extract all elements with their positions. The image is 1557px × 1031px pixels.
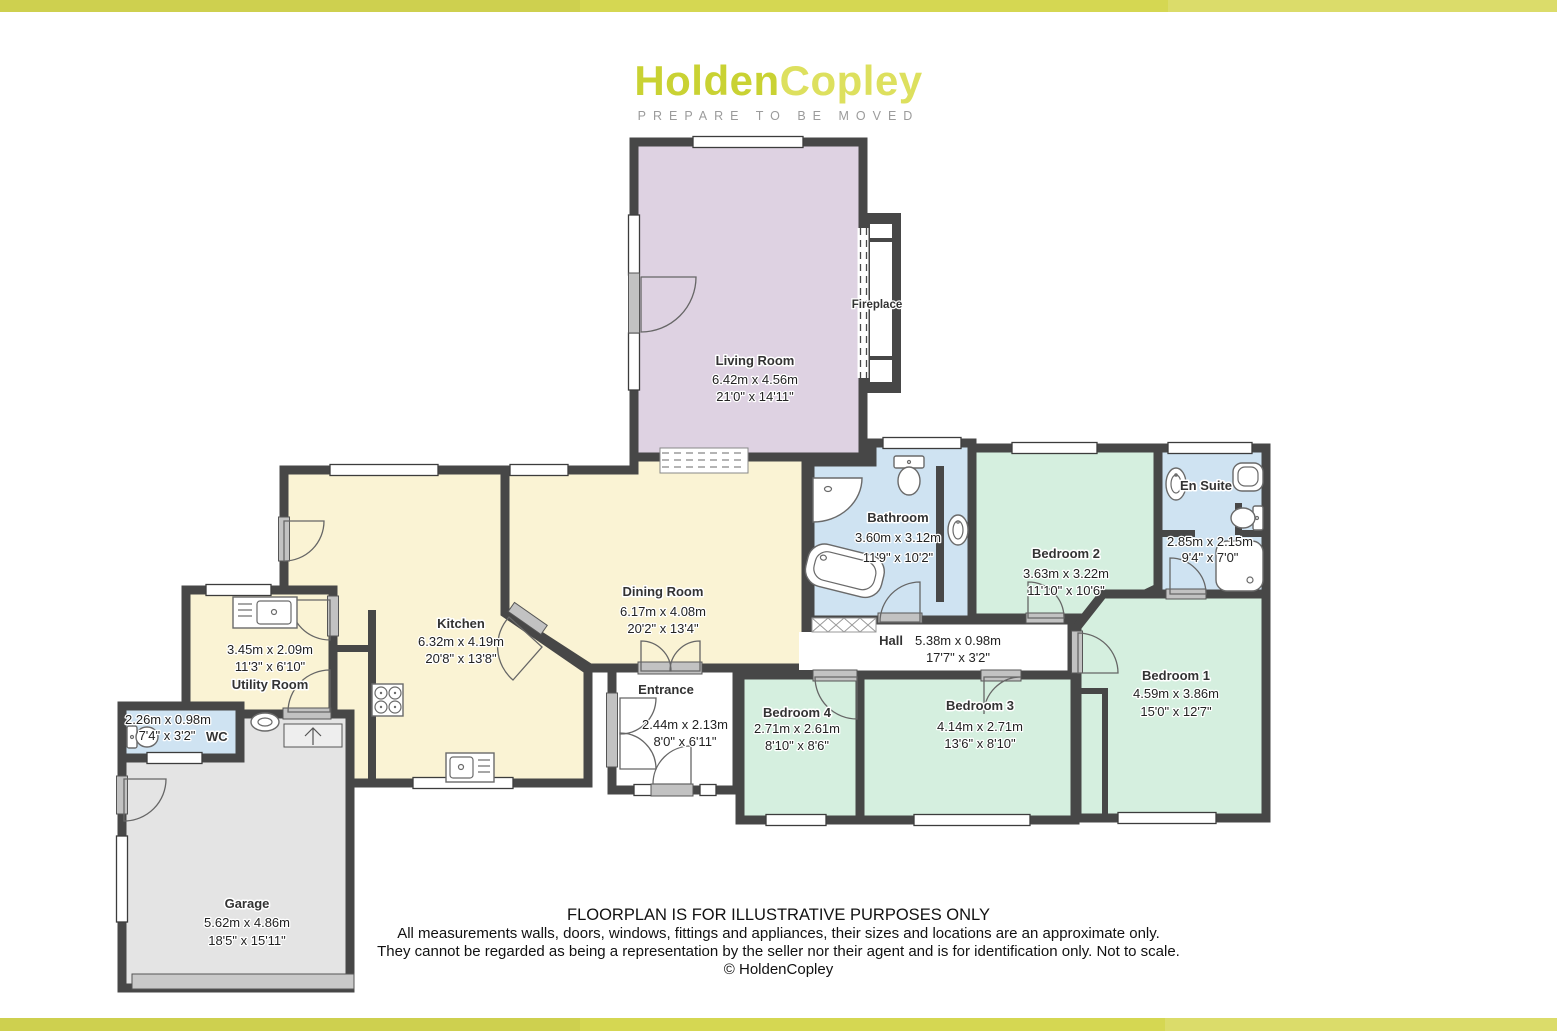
room-dim-imperial: 8'10" x 8'6" <box>765 738 829 753</box>
toilet-icon <box>1231 506 1263 530</box>
room-dim-metric: 4.59m x 3.86m <box>1133 686 1219 701</box>
room-label: Utility Room <box>232 677 309 692</box>
room-dim-metric: 2.26m x 0.98m <box>125 712 211 727</box>
room-label: Living Room <box>716 353 795 368</box>
room-dim-imperial: 11'10" x 10'6" <box>1027 583 1105 598</box>
room-dim-imperial: 11'9" x 10'2" <box>863 550 934 565</box>
room-dim-imperial: 17'7" x 3'2" <box>926 650 990 665</box>
window <box>1168 443 1252 454</box>
room-label: WC <box>206 729 228 744</box>
sink-icon <box>446 753 494 782</box>
bottom-bar-segment <box>1165 1018 1557 1031</box>
window <box>1012 443 1097 454</box>
bedroom1-wardrobe-wall <box>1102 688 1108 815</box>
room-dim-metric: 6.42m x 4.56m <box>712 372 798 387</box>
window <box>914 815 1030 826</box>
room-dim-metric: 3.63m x 3.22m <box>1023 566 1109 581</box>
floorplan-svg: Living Room 6.42m x 4.56m 21'0" x 14'11"… <box>0 0 1557 1031</box>
room-dim-metric: 3.45m x 2.09m <box>227 642 313 657</box>
room-dim-imperial: 7'4" x 3'2" <box>139 728 196 743</box>
room-label: Hall <box>879 633 903 648</box>
room-dim-imperial: 20'8" x 13'8" <box>425 651 497 666</box>
steps-icon <box>284 724 342 747</box>
basin-icon <box>251 713 279 731</box>
disclaimer-line: They cannot be regarded as being a repre… <box>0 943 1557 961</box>
bottom-bar-segment <box>0 1018 580 1031</box>
disclaimer-title: FLOORPLAN IS FOR ILLUSTRATIVE PURPOSES O… <box>0 906 1557 925</box>
room-living <box>634 142 863 457</box>
room-label: Bedroom 4 <box>763 705 832 720</box>
room-dim-metric: 3.60m x 3.12m <box>855 530 941 545</box>
room-label: En Suite <box>1180 478 1232 493</box>
room-label: Bathroom <box>867 510 928 525</box>
room-dim-imperial: 21'0" x 14'11" <box>716 389 794 404</box>
window <box>330 465 438 476</box>
window <box>629 333 640 390</box>
window <box>1118 813 1216 824</box>
window <box>883 438 961 449</box>
fireplace-label: Fireplace <box>852 299 903 311</box>
bottom-accent-bar <box>0 1018 1557 1031</box>
disclaimer-copyright: © HoldenCopley <box>0 960 1557 979</box>
window <box>634 785 652 796</box>
window <box>693 137 803 148</box>
window <box>147 753 202 764</box>
door-threshold <box>117 776 128 814</box>
window <box>700 785 716 796</box>
door-threshold <box>328 596 339 636</box>
window <box>629 215 640 275</box>
window <box>766 815 826 826</box>
room-dim-imperial: 8'0" x 6'11" <box>653 734 716 749</box>
room-dim-imperial: 15'0" x 12'7" <box>1140 704 1212 719</box>
room-dim-metric: 4.14m x 2.71m <box>937 719 1023 734</box>
door-threshold <box>981 670 1021 681</box>
room-dim-imperial: 9'4" x 7'0" <box>1182 550 1239 565</box>
window <box>510 465 568 476</box>
room-dim-imperial: 11'3" x 6'10" <box>235 659 306 674</box>
bedroom1-wardrobe-wall <box>1077 688 1105 694</box>
room-label: Kitchen <box>437 616 485 631</box>
room-label: Bedroom 2 <box>1032 546 1100 561</box>
room-dim-imperial: 20'2" x 13'4" <box>627 621 699 636</box>
room-dim-metric: 5.38m x 0.98m <box>915 633 1001 648</box>
basin-icon <box>948 515 968 545</box>
door-threshold <box>813 670 857 681</box>
room-dining <box>505 457 806 668</box>
hall-hatch <box>812 618 876 632</box>
room-label: Bedroom 1 <box>1142 668 1210 683</box>
door-threshold <box>629 273 640 333</box>
door-threshold <box>1072 631 1083 673</box>
room-dim-metric: 2.71m x 2.61m <box>754 721 840 736</box>
room-dim-imperial: 13'6" x 8'10" <box>944 736 1016 751</box>
disclaimer: FLOORPLAN IS FOR ILLUSTRATIVE PURPOSES O… <box>0 906 1557 979</box>
room-label: Entrance <box>638 682 694 697</box>
room-dim-metric: 6.17m x 4.08m <box>620 604 706 619</box>
room-label: Dining Room <box>623 584 704 599</box>
steps-hatch <box>660 448 748 473</box>
window <box>206 585 271 596</box>
hall-opening <box>799 632 817 670</box>
disclaimer-line: All measurements walls, doors, windows, … <box>0 925 1557 943</box>
hob-icon <box>372 684 403 716</box>
room-dim-metric: 2.44m x 2.13m <box>642 717 728 732</box>
basin-icon <box>1233 463 1263 491</box>
kitchen-partition-wall <box>333 645 370 652</box>
door-threshold <box>283 708 331 719</box>
room-label: Bedroom 3 <box>946 698 1014 713</box>
sink-icon <box>233 597 297 628</box>
room-dim-metric: 2.85m x 2.15m <box>1167 534 1253 549</box>
front-door-threshold <box>651 784 693 796</box>
door-threshold <box>607 693 618 767</box>
room-dim-metric: 6.32m x 4.19m <box>418 634 504 649</box>
